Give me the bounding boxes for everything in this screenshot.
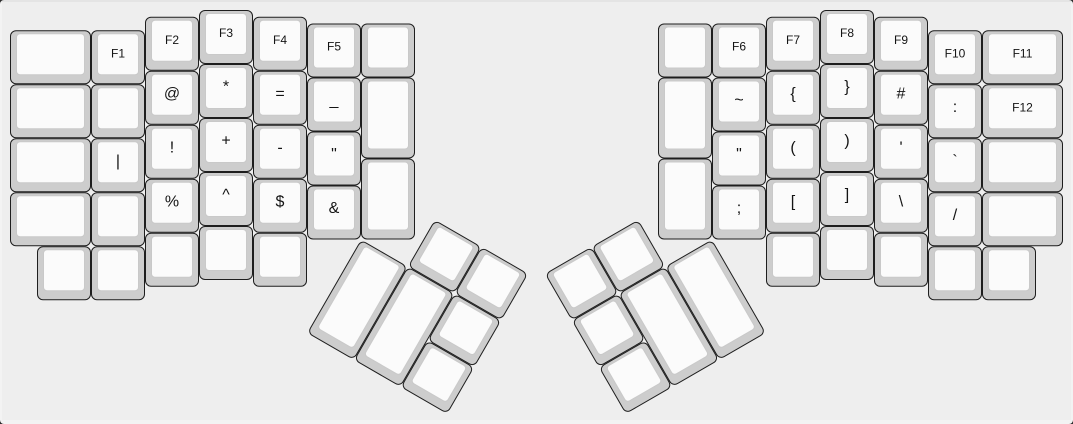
svg-text:F3: F3 [219, 26, 233, 40]
svg-text:[: [ [791, 193, 796, 210]
svg-text:#: # [897, 85, 906, 102]
svg-text:\: \ [899, 193, 904, 210]
svg-text:F11: F11 [1013, 46, 1033, 60]
svg-text:$: $ [276, 193, 285, 210]
svg-text:': ' [899, 139, 902, 156]
svg-text:}: } [844, 79, 850, 96]
svg-text:;: ; [737, 200, 741, 217]
svg-text:": " [331, 146, 337, 163]
svg-text:@: @ [164, 85, 180, 102]
svg-text:F8: F8 [840, 26, 854, 40]
svg-text:=: = [275, 85, 284, 102]
svg-text:(: ( [790, 139, 796, 156]
svg-text:F6: F6 [732, 40, 746, 54]
svg-text:|: | [116, 153, 120, 170]
svg-text:F1: F1 [111, 46, 125, 60]
svg-text:F12: F12 [1012, 100, 1033, 114]
svg-text:-: - [277, 139, 282, 156]
svg-text:]: ] [845, 187, 849, 204]
svg-text:F7: F7 [786, 33, 800, 47]
svg-text:F4: F4 [273, 33, 287, 47]
svg-text:~: ~ [734, 92, 743, 109]
svg-text:{: { [790, 85, 796, 102]
svg-text:): ) [844, 133, 849, 150]
svg-text:`: ` [952, 153, 957, 170]
svg-text:F10: F10 [945, 46, 966, 60]
svg-text:": " [736, 146, 742, 163]
svg-text:F2: F2 [165, 33, 179, 47]
svg-text:*: * [223, 79, 229, 96]
svg-text:!: ! [170, 139, 174, 156]
svg-text:/: / [953, 207, 958, 224]
svg-text:^: ^ [222, 187, 230, 204]
svg-text:+: + [221, 133, 230, 150]
svg-text:_: _ [329, 92, 340, 109]
svg-text:F9: F9 [894, 33, 908, 47]
svg-text::: : [953, 99, 957, 116]
svg-text:&: & [329, 200, 340, 217]
svg-text:%: % [165, 193, 179, 210]
svg-text:F5: F5 [327, 40, 341, 54]
